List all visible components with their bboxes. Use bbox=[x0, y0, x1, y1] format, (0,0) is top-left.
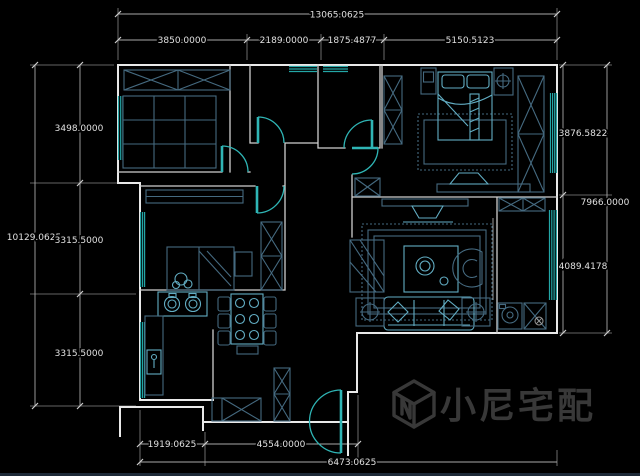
dim-left-seg-2: 3315.5000 bbox=[55, 236, 104, 246]
nightstand-left bbox=[421, 68, 436, 94]
drain-symbol bbox=[535, 317, 543, 325]
interior-walls bbox=[118, 65, 557, 400]
cad-floorplan-screenshot: 13065.0625 3850.0000 2189.0000 1875.4877… bbox=[0, 0, 640, 476]
stove-counter bbox=[158, 292, 207, 316]
master-bedroom-furniture bbox=[384, 68, 544, 192]
dining-chairs bbox=[218, 297, 276, 345]
stool bbox=[235, 252, 252, 276]
bedroom1-door bbox=[222, 146, 248, 172]
dim-left-overall: 10129.0625 bbox=[7, 233, 61, 243]
master-wardrobe-left bbox=[384, 76, 402, 144]
coffee-table bbox=[404, 246, 458, 292]
watermark-text: 小尼宅配 bbox=[440, 385, 596, 427]
chaise-lounge bbox=[350, 240, 384, 292]
side-table-left bbox=[356, 298, 384, 326]
dim-top-seg-4: 5150.5123 bbox=[446, 36, 495, 46]
windows-layer bbox=[119, 67, 557, 399]
dresser bbox=[167, 247, 234, 290]
dim-bottom-seg-1: 1919.0625 bbox=[148, 440, 197, 450]
entry-furniture bbox=[212, 368, 290, 421]
dim-bottom-overall: 6473.0625 bbox=[328, 458, 377, 468]
dim-right-overall: 7966.0000 bbox=[581, 198, 630, 208]
double-bed bbox=[438, 72, 492, 140]
study-furniture bbox=[146, 190, 282, 290]
bath1-door bbox=[258, 117, 284, 143]
study-wardrobe bbox=[261, 222, 282, 290]
master-wardrobe-right bbox=[518, 76, 544, 192]
dim-left-seg-1: 3498.0000 bbox=[55, 124, 104, 134]
dim-top-seg-2: 2189.0000 bbox=[260, 36, 309, 46]
master-door bbox=[352, 148, 378, 174]
balcony-cabinet-bottom bbox=[524, 303, 546, 329]
balcony-window bbox=[550, 210, 557, 300]
study-door bbox=[257, 186, 284, 213]
dim-right-seg-1: 3876.5822 bbox=[559, 129, 608, 139]
living-tv bbox=[382, 199, 468, 222]
corridor-cabinet bbox=[355, 178, 380, 196]
dim-top-overall: 13065.0625 bbox=[310, 11, 364, 21]
bath1-window bbox=[289, 67, 317, 72]
doors-layer bbox=[222, 117, 378, 453]
bath2-door bbox=[344, 120, 372, 148]
plates bbox=[236, 299, 259, 340]
dim-bottom-seg-2: 4554.0000 bbox=[257, 440, 306, 450]
bedroom1-furniture bbox=[123, 70, 230, 168]
dim-left-seg-3: 3315.5000 bbox=[55, 349, 104, 359]
living-room-furniture bbox=[350, 199, 492, 330]
washing-machine bbox=[498, 303, 522, 329]
master-window bbox=[551, 93, 557, 173]
dim-top-seg-1: 3850.0000 bbox=[158, 36, 207, 46]
bench bbox=[237, 346, 258, 354]
balcony-cabinet-top bbox=[499, 198, 545, 211]
bath2-window bbox=[323, 67, 348, 72]
armchair bbox=[453, 249, 482, 287]
kitchen-window bbox=[141, 322, 145, 398]
balcony-furniture bbox=[498, 198, 546, 329]
nightstand-right bbox=[494, 68, 513, 95]
tatami-bed bbox=[123, 96, 216, 168]
watermark: 小尼宅配 bbox=[394, 381, 596, 427]
entry-tall-cabinet bbox=[274, 368, 290, 421]
shoe-cabinet bbox=[212, 398, 261, 421]
master-tv bbox=[437, 173, 530, 192]
dining-furniture bbox=[218, 294, 276, 354]
dim-right-seg-2: 4089.4178 bbox=[559, 262, 608, 272]
kitchen-furniture bbox=[145, 292, 207, 395]
furniture-layer bbox=[123, 68, 546, 421]
dim-top-seg-3: 1875.4877 bbox=[328, 36, 377, 46]
study-window bbox=[141, 212, 145, 287]
sink-counter bbox=[145, 316, 163, 395]
wardrobe bbox=[124, 70, 230, 90]
bedroom1-window bbox=[119, 96, 123, 160]
watermark-cube-logo bbox=[394, 381, 434, 427]
